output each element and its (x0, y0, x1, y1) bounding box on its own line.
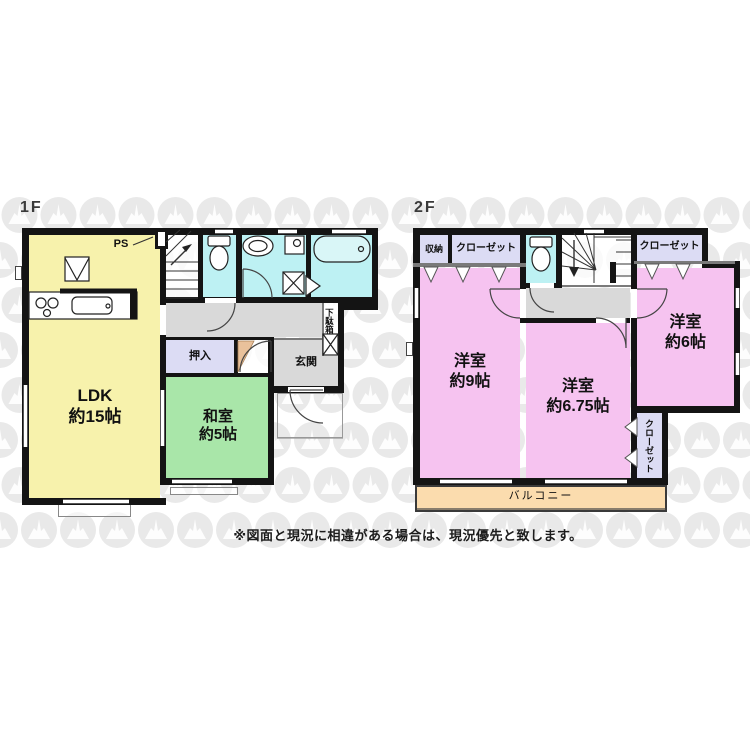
disclaimer-text: ※図面と現況に相違がある場合は、現況優先と致します。 (155, 528, 661, 544)
label-ps: PS (108, 238, 134, 251)
ps-leader-line (133, 237, 153, 245)
washitsu-name: 和室 (170, 408, 266, 426)
toilet-2f-icon (530, 237, 552, 271)
label-balcony: バルコニー (465, 490, 617, 503)
room9-size: 約9帖 (420, 372, 520, 392)
washitsu-size: 約5帖 (170, 426, 266, 444)
room-label-yoshitsu675: 洋室 約6.75帖 (526, 377, 630, 416)
stairs-1f-icon (166, 230, 198, 298)
room9-name: 洋室 (420, 352, 520, 372)
toilet-1f-icon (208, 236, 230, 270)
floor1-title: 1F (20, 198, 43, 218)
room-label-washitsu: 和室 約5帖 (170, 408, 266, 445)
washroom-fixtures-icon (243, 236, 304, 294)
kitchen-icon (29, 257, 137, 319)
floorplan-image: 1F 2F LDK 約15帖 和室 約5帖 押入 玄関 下駄箱 PS 収納 クロ… (0, 0, 750, 750)
label-closet-top-right: クローゼット (635, 241, 704, 253)
stairs-2f-icon (562, 233, 631, 283)
room-label-yoshitsu6: 洋室 約6帖 (637, 313, 734, 352)
floor2-title: 2F (414, 198, 437, 218)
room6-size: 約6帖 (637, 333, 734, 353)
label-genkan: 玄関 (276, 356, 336, 369)
label-closet-side: クローゼット (643, 416, 654, 476)
room675-size: 約6.75帖 (526, 397, 630, 417)
room-label-ldk: LDK 約15帖 (40, 386, 150, 427)
bathtub-icon (306, 236, 370, 296)
ldk-name: LDK (40, 386, 150, 407)
label-closet-top-left: クローゼット (451, 243, 521, 255)
room-label-yoshitsu9: 洋室 約9帖 (420, 352, 520, 391)
ldk-size: 約15帖 (40, 407, 150, 428)
room675-name: 洋室 (526, 377, 630, 397)
fixtures-and-doors (0, 0, 750, 750)
label-shuno: 収納 (419, 244, 449, 255)
label-getabako: 下駄箱 (324, 306, 334, 336)
shoe-cabinet-icon (323, 334, 338, 355)
room6-name: 洋室 (637, 313, 734, 333)
label-oshiire: 押入 (168, 350, 232, 363)
